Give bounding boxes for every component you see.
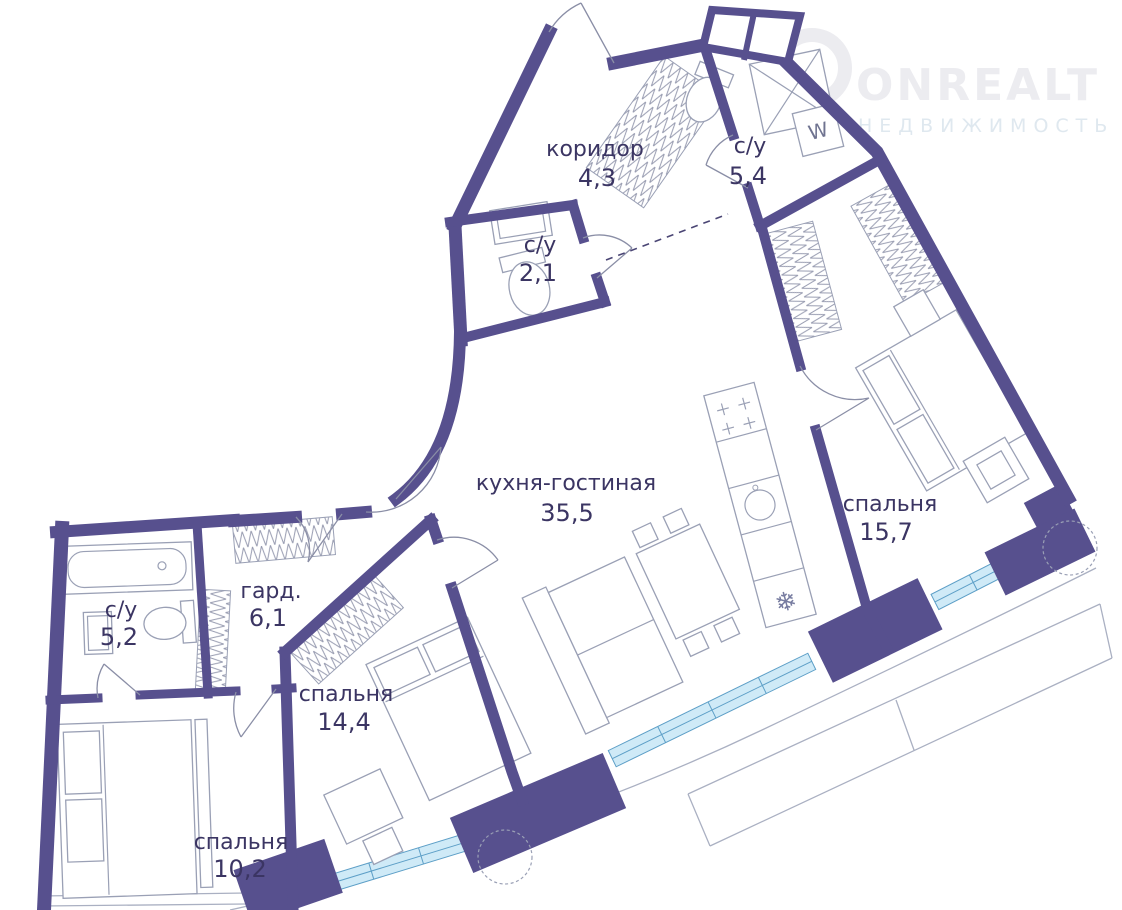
bedroom10-furniture <box>57 719 213 898</box>
floor-plan-canvas: ONREALT НЕДВИЖИМОСТЬ <box>0 0 1122 910</box>
dashed-partition <box>606 214 728 260</box>
room-area-bath54: 5,4 <box>729 162 767 190</box>
room-area-bedroom15: 15,7 <box>859 518 912 546</box>
room-label-kitchen: кухня-гостиная <box>476 471 656 496</box>
room-label-bath21: с/у <box>524 233 557 258</box>
room-area-bath52: 5,2 <box>100 623 138 651</box>
watermark-brand: ONREALT <box>856 60 1100 111</box>
room-area-corridor: 4,3 <box>578 164 616 192</box>
room-area-bath21: 2,1 <box>519 259 557 287</box>
room-label-corridor: коридор <box>546 137 644 162</box>
room-label-wardrobe: гард. <box>240 579 301 604</box>
toilet-icon <box>143 600 197 645</box>
room-label-bath52: с/у <box>105 598 138 623</box>
room-label-bedroom14: спальня <box>299 682 394 707</box>
room-area-kitchen: 35,5 <box>540 499 593 527</box>
room-area-bedroom14: 14,4 <box>317 708 370 736</box>
entry-door <box>549 3 614 63</box>
room-label-bedroom10: спальня <box>194 830 289 855</box>
room-area-bedroom10: 10,2 <box>213 855 266 883</box>
floor-plan-page: ONREALT НЕДВИЖИМОСТЬ <box>0 0 1122 910</box>
room-label-bedroom15: спальня <box>843 492 938 517</box>
bathtub-icon <box>61 542 193 595</box>
room-area-wardrobe: 6,1 <box>249 604 287 632</box>
watermark-subtitle: НЕДВИЖИМОСТЬ <box>858 115 1114 137</box>
room-label-bath54: с/у <box>734 134 767 159</box>
shaft-box <box>703 10 800 62</box>
bedroom15-furniture <box>856 290 1029 503</box>
